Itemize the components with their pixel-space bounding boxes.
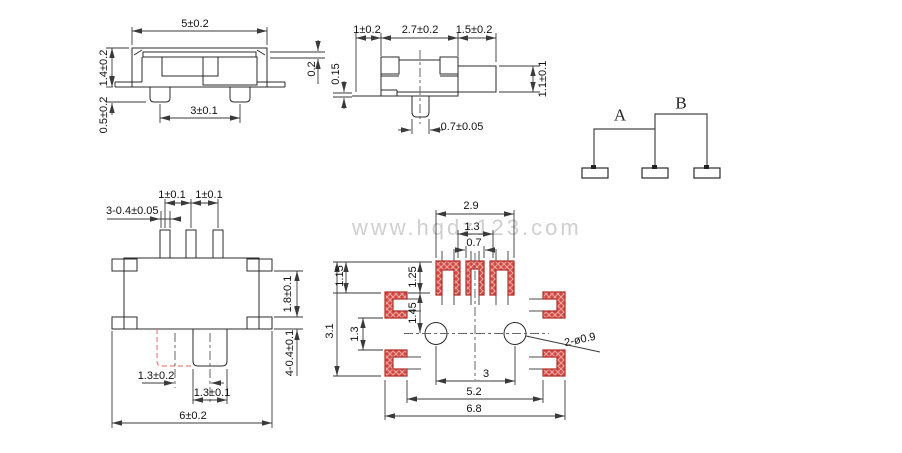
dim-overall-width: 6±0.2 (179, 410, 206, 422)
pad-lug-top-left (385, 292, 407, 318)
note-pin-width: 3-0.4±0.05 (106, 205, 159, 217)
dim-pad-inner-gap: 1.3 (464, 221, 479, 233)
terminal-3 (694, 168, 720, 178)
right-foot (230, 87, 250, 102)
slide-switch-technical-drawing: www.hqdz123.com 5±0.2 1.4±0.2 0 (0, 0, 902, 453)
side-view: 5±0.2 1.4±0.2 0.5±0.2 3±0.1 0.2 (98, 18, 325, 133)
wire-position-a (594, 129, 655, 168)
dim-pin-height: 0.5±0.2 (98, 97, 110, 134)
switch-body-outline (124, 258, 259, 329)
pad-pin-3 (490, 261, 514, 295)
dim-pad-span: 2.9 (463, 200, 478, 212)
dim-hole-pitch: 3 (483, 368, 489, 380)
dim-pin-width: 0.7±0.05 (441, 121, 484, 133)
dim-pin-pitch-left: 1±0.1 (158, 189, 185, 201)
note-lug-width: 4-0.4±0.1 (284, 330, 296, 376)
pin-3 (213, 230, 223, 258)
dim-lug-gap: 1.8±0.1 (282, 276, 294, 313)
cover-tab-right (440, 57, 458, 74)
terminal-1 (582, 168, 608, 178)
terminal-2 (642, 168, 668, 178)
label-position-a: A (614, 106, 627, 125)
end-view: 1±0.2 2.7±0.2 1.5±0.2 0.15 1.1±0.1 0.7±0… (330, 24, 549, 134)
top-view: 1±0.1 1±0.1 3-0.4±0.05 1.8±0.1 4-0.4±0.1… (106, 189, 303, 428)
dim-pad-height: 1.25 (407, 266, 419, 287)
dim-body-height: 1.4±0.2 (98, 50, 110, 87)
left-foot (150, 87, 170, 102)
dim-pad-to-holes: 1.45 (407, 302, 419, 323)
dim-knob-width: 1.3±0.1 (194, 387, 231, 399)
wire-position-b (655, 114, 707, 168)
drawing-canvas: www.hqdz123.com 5±0.2 1.4±0.2 0 (0, 0, 902, 453)
dim-outer-span: 6.8 (466, 403, 481, 415)
dim-inner-span: 5.2 (466, 386, 481, 398)
dim-row-offset: 1.15 (334, 265, 346, 286)
dim-total-height: 3.1 (324, 323, 336, 338)
pad-lug-bottom-right (543, 350, 565, 376)
dim-pin-pitch-right: 1±0.1 (195, 189, 222, 201)
dim-cover-thickness: 0.2 (306, 61, 318, 76)
label-position-b: B (675, 94, 686, 113)
dim-knob-length: 1.5±0.2 (456, 24, 493, 36)
dim-left-offset: 1±0.2 (353, 24, 380, 36)
dim-side-pad-gap: 1.3 (349, 326, 361, 341)
dim-center-pad-width: 0.7 (466, 237, 481, 249)
switch-body-outline (132, 48, 267, 87)
cover-tab-left (381, 57, 399, 74)
slider-knob (458, 66, 496, 92)
circuit-schematic: A B (582, 94, 720, 179)
pad-lug-top-right (543, 292, 565, 318)
pad-pin-1 (436, 261, 460, 295)
dim-knob-travel: 1.3±0.2 (138, 370, 175, 382)
dim-foot-pitch: 3±0.1 (190, 105, 217, 117)
dim-standoff: 0.15 (330, 63, 342, 84)
note-hole-diameter: 2-ø0.9 (563, 331, 597, 349)
pin-1 (160, 230, 170, 258)
dim-knob-height: 1.1±0.1 (537, 61, 549, 98)
pin-2 (186, 230, 196, 258)
dim-body-width: 2.7±0.2 (402, 24, 439, 36)
dim-body-width: 5±0.2 (181, 18, 208, 30)
pad-lug-bottom-left (385, 350, 407, 376)
